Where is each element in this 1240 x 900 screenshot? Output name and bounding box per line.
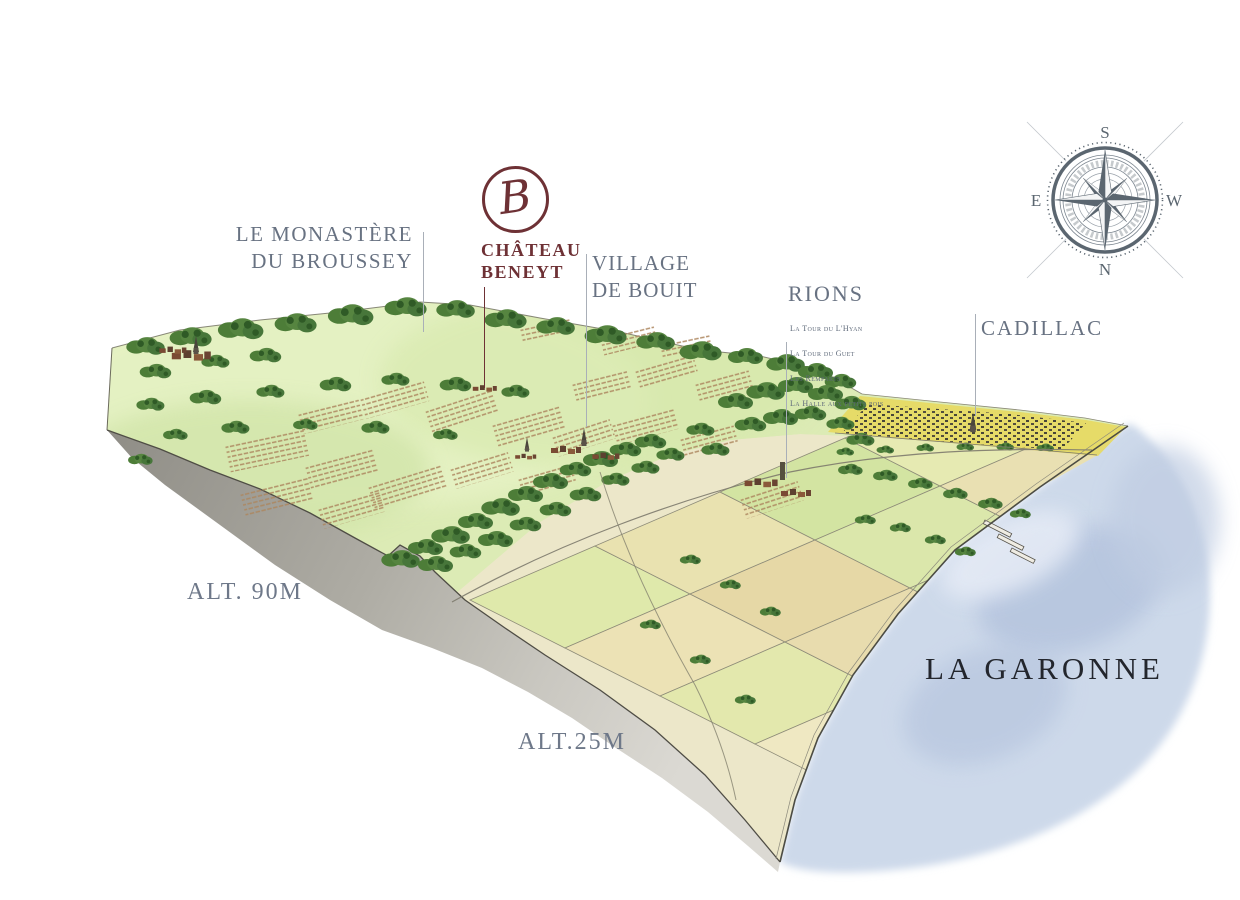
rions-item-tour-hyan: La Tour du L'Hyan <box>790 325 884 333</box>
altitude-plateau-label: ALT. 90M <box>187 579 303 606</box>
chateau-beneyt-label: CHÂTEAUBENEYT <box>481 239 582 283</box>
monastere-line2: DU BROUSSEY <box>251 249 413 273</box>
monastere-leader-line <box>423 232 424 332</box>
monastere-line1: LE MONASTÈRE <box>236 222 413 246</box>
chateau-beneyt-logo: B <box>482 166 549 233</box>
compass-south-label: S <box>1100 123 1109 142</box>
rions-landmarks-list: La Tour du L'Hyan La Tour du Guet Les Re… <box>790 308 884 417</box>
rions-leader-line <box>786 342 787 478</box>
village-line2: DE BOUIT <box>592 278 697 302</box>
altitude-plain-label: ALT.25M <box>518 729 626 756</box>
compass-rose: S N E W <box>1027 122 1183 279</box>
village-bouit-label: VILLAGEDE BOUIT <box>592 250 697 304</box>
compass-east-label: E <box>1031 191 1041 210</box>
rions-item-halle: La Halle aux petits pois <box>790 400 884 408</box>
cadillac-label: CADILLAC <box>981 316 1103 341</box>
illustrated-estate-map: S N E W LE MONASTÈREDU BROUSSEY B CHÂTEA… <box>0 0 1240 900</box>
chateau-beneyt-leader-line <box>484 287 485 388</box>
compass-west-label: W <box>1166 191 1183 210</box>
chateau-line1: CHÂTEAU <box>481 240 582 260</box>
rions-item-remparts: Les Remparts <box>790 375 884 383</box>
rions-item-tour-guet: La Tour du Guet <box>790 350 884 358</box>
cadillac-leader-line <box>975 314 976 416</box>
compass-north-label: N <box>1099 260 1111 279</box>
chateau-line2: BENEYT <box>481 262 564 282</box>
village-line1: VILLAGE <box>592 251 690 275</box>
logo-monogram: B <box>496 170 535 225</box>
monastere-broussey-label: LE MONASTÈREDU BROUSSEY <box>236 221 413 275</box>
village-bouit-leader-line <box>586 254 587 427</box>
garonne-river-label: LA GARONNE <box>925 651 1164 687</box>
rions-label: RIONS <box>788 281 864 307</box>
terrain-artwork: S N E W <box>0 0 1240 900</box>
